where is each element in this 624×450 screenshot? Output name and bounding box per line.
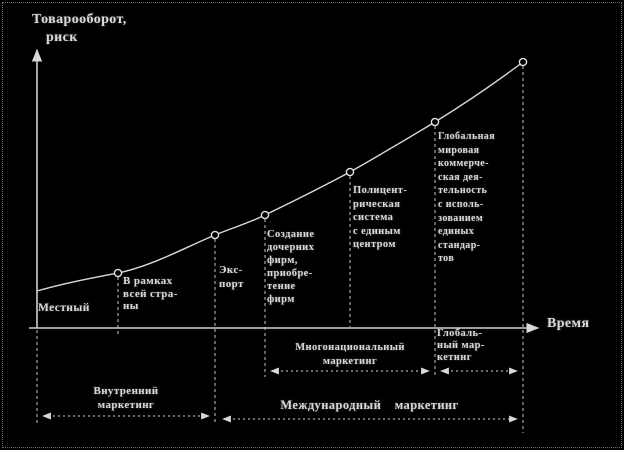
x-axis-label: Время (547, 316, 589, 332)
stage-label-global-activity: Глобальная мировая коммерче- ская дея- т… (438, 130, 495, 266)
stage-label-export: Экс- порт (219, 263, 244, 291)
figure-canvas: Товарооборот, риск Время Местный В рамка… (0, 0, 624, 450)
stage-label-polycentric: Полицент- рическая система с единым цент… (353, 184, 407, 252)
span-label-multinational-marketing: Многонациональный маркетинг (265, 341, 435, 369)
point-subsidiaries (261, 211, 268, 218)
stage-label-subsidiaries: Создание дочерних фирм, приобре- тение ф… (267, 228, 314, 306)
point-export (211, 231, 218, 238)
point-polycentric (346, 168, 353, 175)
span-label-international-marketing: Международный маркетинг (217, 398, 522, 413)
span-label-global-marketing: Глобаль- ный мар- кетинг (437, 328, 485, 363)
stage-label-local: Местный (38, 302, 90, 314)
stage-label-country: В рамках всей стра- ны (123, 275, 178, 313)
point-global-activity (431, 118, 438, 125)
span-label-domestic-marketing: Внутренний маркетинг (37, 384, 215, 412)
point-country (114, 269, 121, 276)
y-axis-label-line1: Товарооборот, (32, 12, 127, 28)
diagram-drawing (0, 0, 624, 450)
point-final (519, 58, 526, 65)
y-axis-label-line2: риск (46, 30, 78, 46)
